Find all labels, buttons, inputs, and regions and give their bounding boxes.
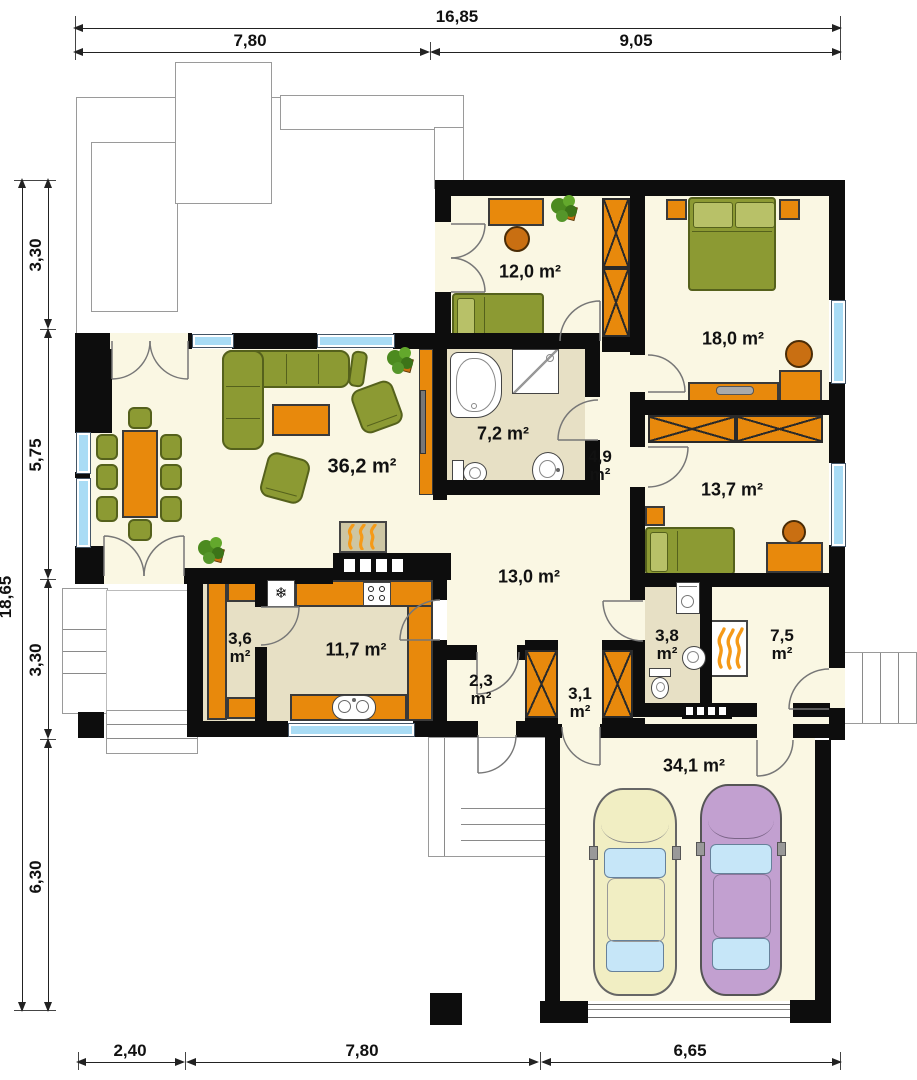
plant-icon [385, 346, 419, 380]
room-label-vestibule: 3,1 m² [568, 685, 592, 721]
dim-line-left-total [22, 180, 23, 1010]
wall [435, 180, 845, 196]
wall [602, 640, 633, 650]
window [317, 334, 395, 348]
wall [433, 349, 447, 500]
windshield [710, 844, 772, 874]
bathtub [450, 352, 502, 418]
bed-single [645, 527, 735, 575]
desk [488, 198, 544, 226]
pillow [735, 202, 775, 228]
flame-icon [343, 524, 383, 550]
room-label-kitchen: 11,7 m² [325, 640, 386, 661]
wall [255, 580, 267, 607]
wall [255, 647, 267, 737]
window [831, 300, 846, 384]
dim-line-bottom-s2 [188, 1062, 537, 1063]
bed-double [688, 197, 776, 291]
wall-corner-block [78, 712, 104, 738]
wall [447, 645, 477, 660]
side-terrace-steps [106, 710, 198, 754]
dim-label: 3,30 [26, 610, 46, 710]
wall [433, 640, 447, 737]
window [288, 723, 415, 737]
desk [766, 542, 823, 573]
burner [379, 586, 385, 592]
dim-line-left-s2 [48, 330, 49, 577]
burner [368, 595, 374, 601]
wall [585, 333, 600, 397]
washing-machine [676, 582, 700, 614]
room-label-garage: 34,1 m² [663, 756, 725, 777]
dim-line-left-s1 [48, 180, 49, 327]
coffee-table [272, 404, 330, 436]
dining-chair [96, 464, 118, 490]
dim-label: 3,30 [26, 205, 46, 305]
pantry-shelf [227, 697, 257, 719]
dim-line-left-s3 [48, 580, 49, 737]
dim-line-bottom-s1 [78, 1062, 183, 1063]
dim-line-top-total [75, 28, 840, 29]
room-label-bedroom1: 12,0 m² [499, 262, 561, 283]
nightstand [645, 506, 665, 526]
wall [517, 645, 525, 660]
dim-label: 16,85 [407, 7, 507, 27]
wall [232, 333, 317, 349]
dining-chair [128, 519, 152, 541]
plant-icon [196, 536, 230, 570]
wall [829, 545, 845, 668]
desk-chair [782, 520, 806, 544]
plant-icon [549, 194, 583, 228]
window [831, 463, 846, 547]
dining-table [122, 430, 158, 518]
tv [420, 390, 426, 454]
wall [630, 196, 645, 355]
wall-pier [75, 349, 112, 433]
room-label-boiler: 7,5 m² [770, 627, 794, 663]
dim-line-bottom-s3 [543, 1062, 840, 1063]
wall [829, 382, 845, 463]
wall [829, 196, 845, 300]
wall [75, 546, 104, 568]
nightstand [666, 199, 687, 220]
wall [630, 415, 645, 447]
mirror [696, 842, 705, 856]
dining-chair [160, 464, 182, 490]
dim-label: 2,40 [80, 1041, 180, 1061]
wall [447, 333, 587, 349]
side-terrace-landing [106, 590, 198, 712]
wall [75, 333, 110, 349]
wall [790, 1000, 831, 1023]
mirror [777, 842, 786, 856]
back-steps [843, 652, 917, 724]
room-label-hall: 4,9 m² [588, 448, 612, 484]
wardrobe [648, 415, 736, 443]
terrace-inner-line [91, 142, 178, 312]
wall [435, 196, 451, 222]
wardrobe [602, 268, 630, 337]
room-label-wc: 3,8 m² [655, 627, 679, 663]
wall [815, 740, 831, 1023]
window [192, 334, 234, 348]
terrace-extension [175, 62, 272, 204]
dim-line-top-right [432, 52, 840, 53]
flame-icon [712, 627, 746, 671]
room-label-bathroom: 7,2 m² [477, 424, 529, 445]
dining-chair [96, 496, 118, 522]
wall [630, 400, 830, 415]
wall [187, 721, 288, 737]
dim-line-left-s4 [48, 740, 49, 1010]
desk [779, 370, 822, 404]
wardrobe [525, 650, 558, 718]
burner [368, 586, 374, 592]
dresser-handle [716, 386, 754, 395]
dining-chair [128, 407, 152, 429]
sink [682, 646, 706, 670]
fireplace [339, 521, 387, 553]
nightstand [779, 199, 800, 220]
pillow [457, 298, 475, 338]
wall [630, 573, 830, 587]
sofa-vertical [222, 350, 264, 450]
shower [512, 349, 559, 394]
pillow [650, 532, 668, 572]
wall [525, 640, 558, 650]
dim-label: 7,80 [200, 31, 300, 51]
window [76, 478, 91, 548]
room-label-living: 36,2 m² [328, 456, 397, 479]
floor-plan: 16,85 7,80 9,05 18,65 3,30 5,75 3,30 6,3… [0, 0, 917, 1080]
fridge: ❄ [267, 580, 295, 607]
wall [540, 1001, 588, 1023]
wall [732, 703, 757, 717]
pantry-shelf [207, 580, 227, 720]
wall [447, 480, 600, 495]
wardrobe [602, 650, 633, 718]
room-label-closet: 2,3 m² [469, 672, 493, 708]
rear-window [606, 940, 664, 972]
pillar [430, 993, 462, 1025]
dining-chair [160, 434, 182, 460]
windshield [604, 848, 666, 878]
wall [75, 568, 104, 584]
wall [600, 724, 757, 738]
room-label-corridor: 13,0 m² [498, 567, 560, 588]
wall [545, 738, 560, 1023]
dim-label: 6,65 [640, 1041, 740, 1061]
dining-chair [160, 496, 182, 522]
wardrobe [736, 415, 823, 443]
room-label-pantry: 3,6 m² [228, 630, 252, 666]
room-label-bedroom3: 13,7 m² [701, 480, 763, 501]
dim-label: 9,05 [586, 31, 686, 51]
dim-line-top-left [75, 52, 428, 53]
kitchen-sink [332, 695, 376, 720]
mirror [589, 846, 598, 860]
wall [187, 568, 203, 737]
stove [363, 582, 391, 606]
desk-chair [504, 226, 530, 252]
burner [379, 595, 385, 601]
toilet [649, 668, 671, 677]
dining-chair [96, 434, 118, 460]
boiler [708, 620, 748, 677]
wall [829, 708, 845, 740]
room-label-bedroom2: 18,0 m² [702, 329, 764, 350]
wall [433, 580, 447, 600]
wall [447, 721, 478, 737]
snowflake-icon: ❄ [275, 585, 288, 602]
wall [793, 703, 830, 717]
dim-label: 5,75 [26, 405, 46, 505]
dim-label: 18,65 [0, 547, 16, 647]
garage-door[interactable] [588, 1004, 790, 1018]
car [700, 784, 782, 996]
wall [516, 721, 525, 737]
rear-window [712, 938, 770, 970]
dim-label: 7,80 [312, 1041, 412, 1061]
dim-label: 6,30 [26, 827, 46, 927]
mirror [672, 846, 681, 860]
toilet-bowl [651, 677, 669, 699]
car [593, 788, 677, 996]
desk-chair [785, 340, 813, 368]
entry-porch [428, 737, 560, 857]
window [76, 432, 91, 474]
roof-overhang-band [280, 95, 464, 130]
wardrobe [602, 198, 630, 268]
side-terrace [62, 588, 108, 714]
wall [638, 703, 682, 717]
wall [793, 724, 830, 738]
kitchen-counter-right [407, 605, 433, 721]
pillow [693, 202, 733, 228]
wall [545, 724, 562, 738]
